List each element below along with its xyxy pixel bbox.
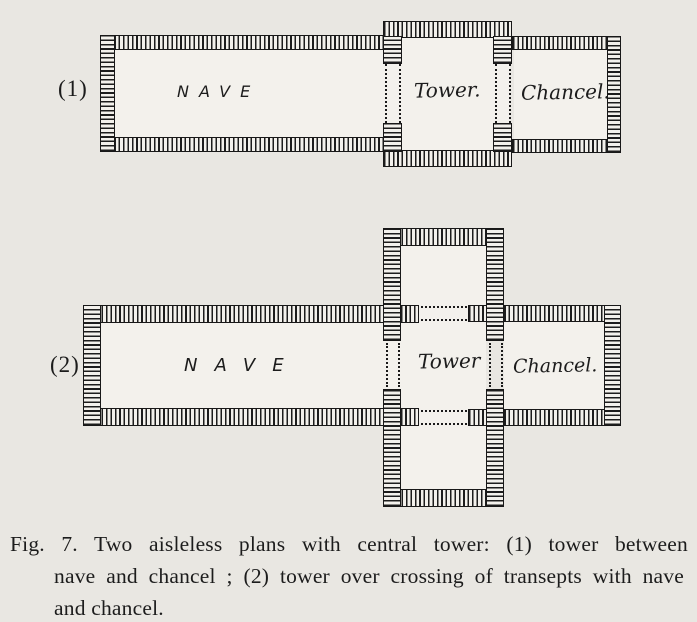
plan-1-tower-pier-sw (383, 123, 402, 152)
plan-2-south-arch-dotted-line (421, 423, 467, 425)
plan-1-number: (1) (58, 76, 88, 102)
plan-2-east-arch-dotted-line (501, 343, 503, 387)
plan-1-tower-pier-se (493, 123, 512, 152)
plan-1-chancel-wall-bottom (512, 139, 621, 153)
plan-2-east-arch-dotted-line (489, 343, 491, 387)
plan-2-east-transept-wall-south (486, 389, 504, 507)
plan-1-nave-label: NAVE (177, 82, 260, 101)
plan-2-chancel-label: Chancel. (513, 354, 598, 377)
plan-1-chancel-label: Chancel. (521, 79, 610, 105)
plan-1-tower-label: Tower. (414, 77, 481, 102)
plan-1-east-arch-dotted-line (509, 64, 511, 123)
plan-2-north-arch-dotted-line (421, 319, 467, 321)
plan-2-nave-label: NAVE (184, 355, 301, 376)
plan-2-west-transept-wall-south (383, 389, 401, 507)
plan-2-tower-label: Tower (418, 348, 481, 373)
plan-1-nave-wall-bottom (100, 137, 385, 152)
plan-1-nave-wall-top (100, 35, 385, 50)
scanned-book-page: (1) NAVE Tower. Chancel. (2) (0, 0, 697, 622)
caption-line-3: and chancel. (54, 593, 164, 622)
plan-1-tower-pier-nw (383, 36, 402, 64)
caption-line-2: nave and chancel ; (2) tower over crossi… (54, 561, 684, 592)
plan-1-nave-wall-west (100, 35, 115, 152)
plan-2-west-arch-dotted-line (386, 343, 388, 387)
plan-1-tower-pier-ne (493, 36, 512, 64)
plan-2-nave-wall-top (83, 305, 419, 323)
plan-1-west-arch-dotted-line (385, 64, 387, 123)
plan-2-south-arch-dotted-line (421, 410, 467, 412)
caption-line-1: Fig. 7. Two aisleless plans with central… (10, 529, 688, 560)
plan-2-nave-wall-bottom (83, 408, 419, 426)
plan-2-north-arch-dotted-line (421, 306, 467, 308)
plan-2-west-arch-dotted-line (398, 343, 400, 387)
plan-1-tower-wall-bottom (383, 150, 512, 167)
plan-2-nave-wall-west (83, 305, 101, 426)
plan-1-west-arch-dotted-line (399, 64, 401, 123)
plan-1-chancel-wall-top (512, 36, 621, 50)
plan-1-east-arch-dotted-line (495, 64, 497, 123)
plan-2-number: (2) (50, 352, 80, 378)
plan-2-chancel-wall-east (604, 305, 621, 426)
plan-2-east-transept-wall-north (486, 228, 504, 341)
plan-2-west-transept-wall-north (383, 228, 401, 341)
